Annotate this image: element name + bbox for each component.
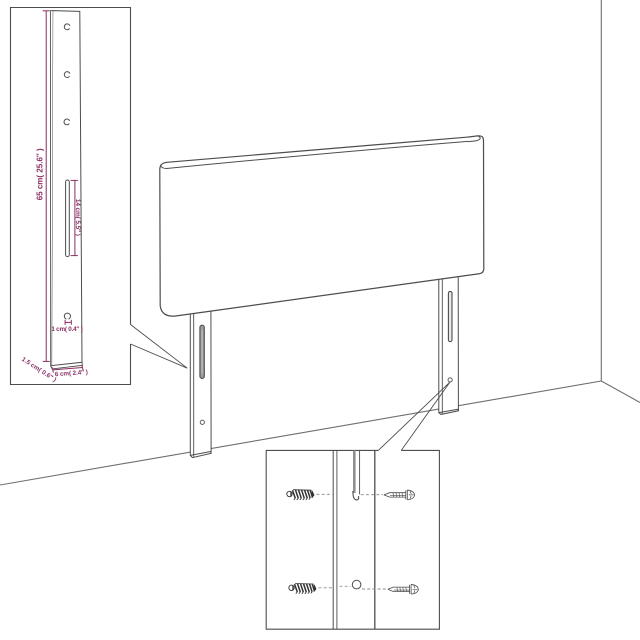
svg-text:14 cm( 5.5″ ): 14 cm( 5.5″ ) <box>74 199 81 236</box>
svg-text:1 cm( 0.4″ ): 1 cm( 0.4″ ) <box>51 326 83 333</box>
svg-text:6 cm( 2.4″ ): 6 cm( 2.4″ ) <box>55 369 88 378</box>
svg-text:65 cm( 25.6″ ): 65 cm( 25.6″ ) <box>36 148 45 200</box>
